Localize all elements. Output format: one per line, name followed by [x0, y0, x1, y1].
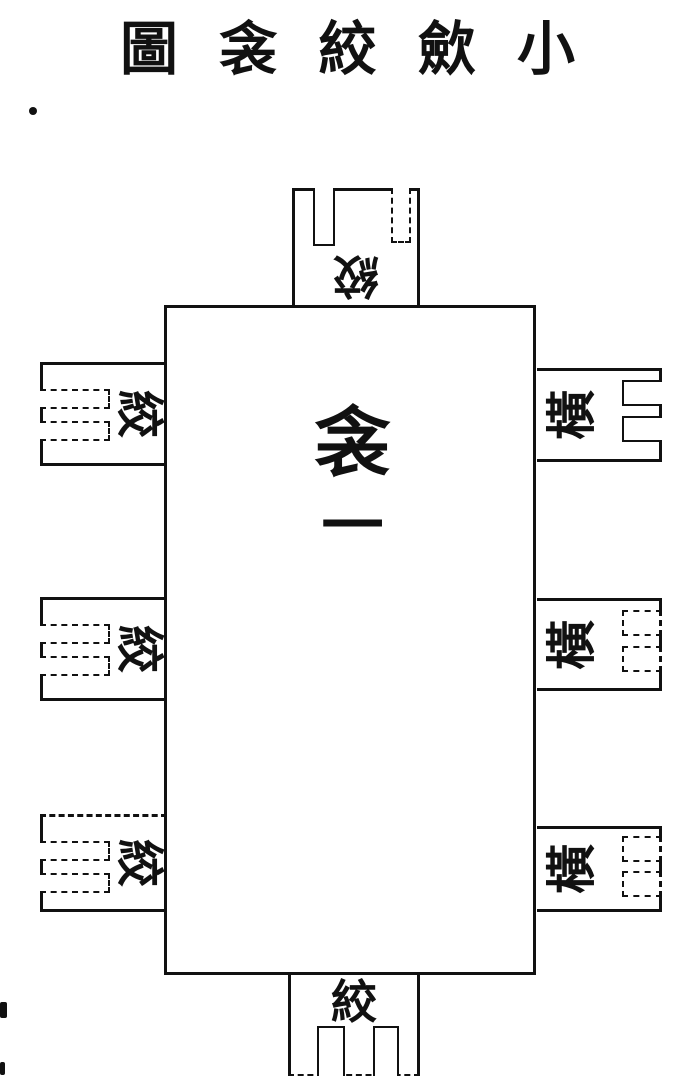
- notch: [40, 389, 110, 409]
- tab-right-2-label: 橫: [547, 620, 597, 670]
- notch: [622, 871, 662, 897]
- ink-speck: [0, 1002, 7, 1018]
- tab-right-1: 橫: [537, 368, 662, 462]
- notch: [40, 624, 110, 644]
- flap-top: 絞: [292, 188, 420, 305]
- coverlet-label: 衾 一: [300, 405, 405, 557]
- notch: [373, 1026, 399, 1076]
- title-char: 衾: [219, 20, 277, 78]
- title-char: 小: [517, 20, 575, 78]
- ink-speck: [0, 1062, 5, 1075]
- tab-left-1: 絞: [40, 362, 167, 466]
- notch: [622, 646, 662, 672]
- notch: [40, 873, 110, 893]
- tab-left-3: 絞: [40, 814, 167, 912]
- page-title: 圖 衾 絞 歛 小: [120, 20, 575, 78]
- flap-bottom-label: 絞: [291, 979, 417, 1025]
- notch: [40, 656, 110, 676]
- title-char: 圖: [120, 20, 178, 78]
- notch: [622, 380, 662, 406]
- notch: [317, 1026, 345, 1076]
- tab-right-3: 橫: [537, 826, 662, 912]
- notch: [391, 188, 411, 243]
- title-char: 絞: [318, 20, 376, 78]
- tab-right-3-label: 橫: [547, 844, 597, 894]
- tab-left-2-label: 絞: [115, 625, 163, 673]
- notch: [40, 421, 110, 441]
- tab-left-3-label: 絞: [115, 839, 163, 887]
- flap-top-label: 絞: [295, 253, 417, 299]
- tab-left-1-label: 絞: [115, 390, 163, 438]
- notch: [622, 416, 662, 442]
- coverlet-char: 衾: [315, 405, 391, 481]
- notch: [40, 841, 110, 861]
- tab-right-1-label: 橫: [547, 390, 597, 440]
- notch: [313, 188, 335, 246]
- title-char: 歛: [418, 20, 476, 78]
- tab-left-2: 絞: [40, 597, 167, 701]
- notch: [622, 610, 662, 636]
- coverlet-char: 一: [321, 495, 383, 557]
- notch: [622, 836, 662, 862]
- ink-speck: [29, 107, 37, 115]
- tab-right-2: 橫: [537, 598, 662, 691]
- scanned-page: 圖 衾 絞 歛 小 衾 一 絞 絞 絞 絞 絞: [0, 0, 690, 1086]
- flap-bottom: 絞: [288, 975, 420, 1076]
